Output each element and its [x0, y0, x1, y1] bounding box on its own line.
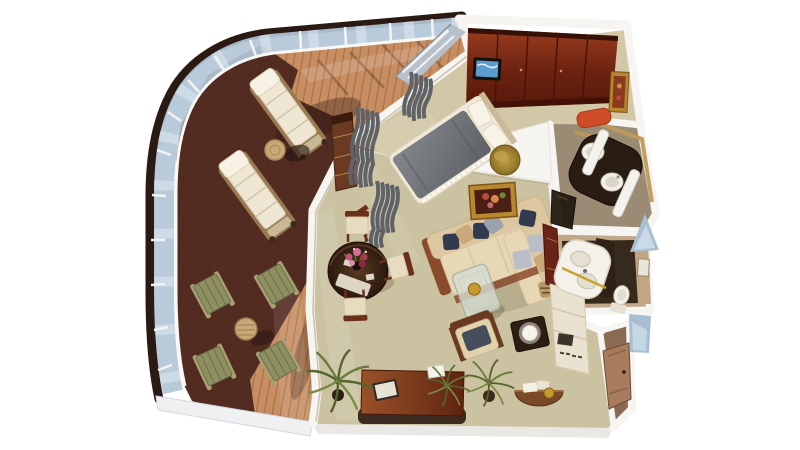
- framed-mirror: [638, 259, 650, 277]
- door-handle: [622, 370, 626, 374]
- floorplan-3d: [0, 0, 800, 450]
- wicker-side-table: [265, 140, 285, 160]
- framed-picture: [609, 72, 629, 113]
- papers: [523, 382, 538, 392]
- framed-painting: [469, 182, 517, 219]
- gold-ottoman: [490, 145, 520, 175]
- desk-card: [427, 365, 444, 378]
- top-wall: [459, 19, 627, 25]
- guest-bath-walls: [552, 231, 646, 233]
- lamp-side-table: [510, 316, 549, 352]
- round-deck-table: [235, 318, 257, 340]
- sink: [601, 173, 623, 191]
- gold-plate: [544, 388, 554, 398]
- vent-grille: [557, 333, 573, 346]
- wall-tv: [472, 57, 501, 80]
